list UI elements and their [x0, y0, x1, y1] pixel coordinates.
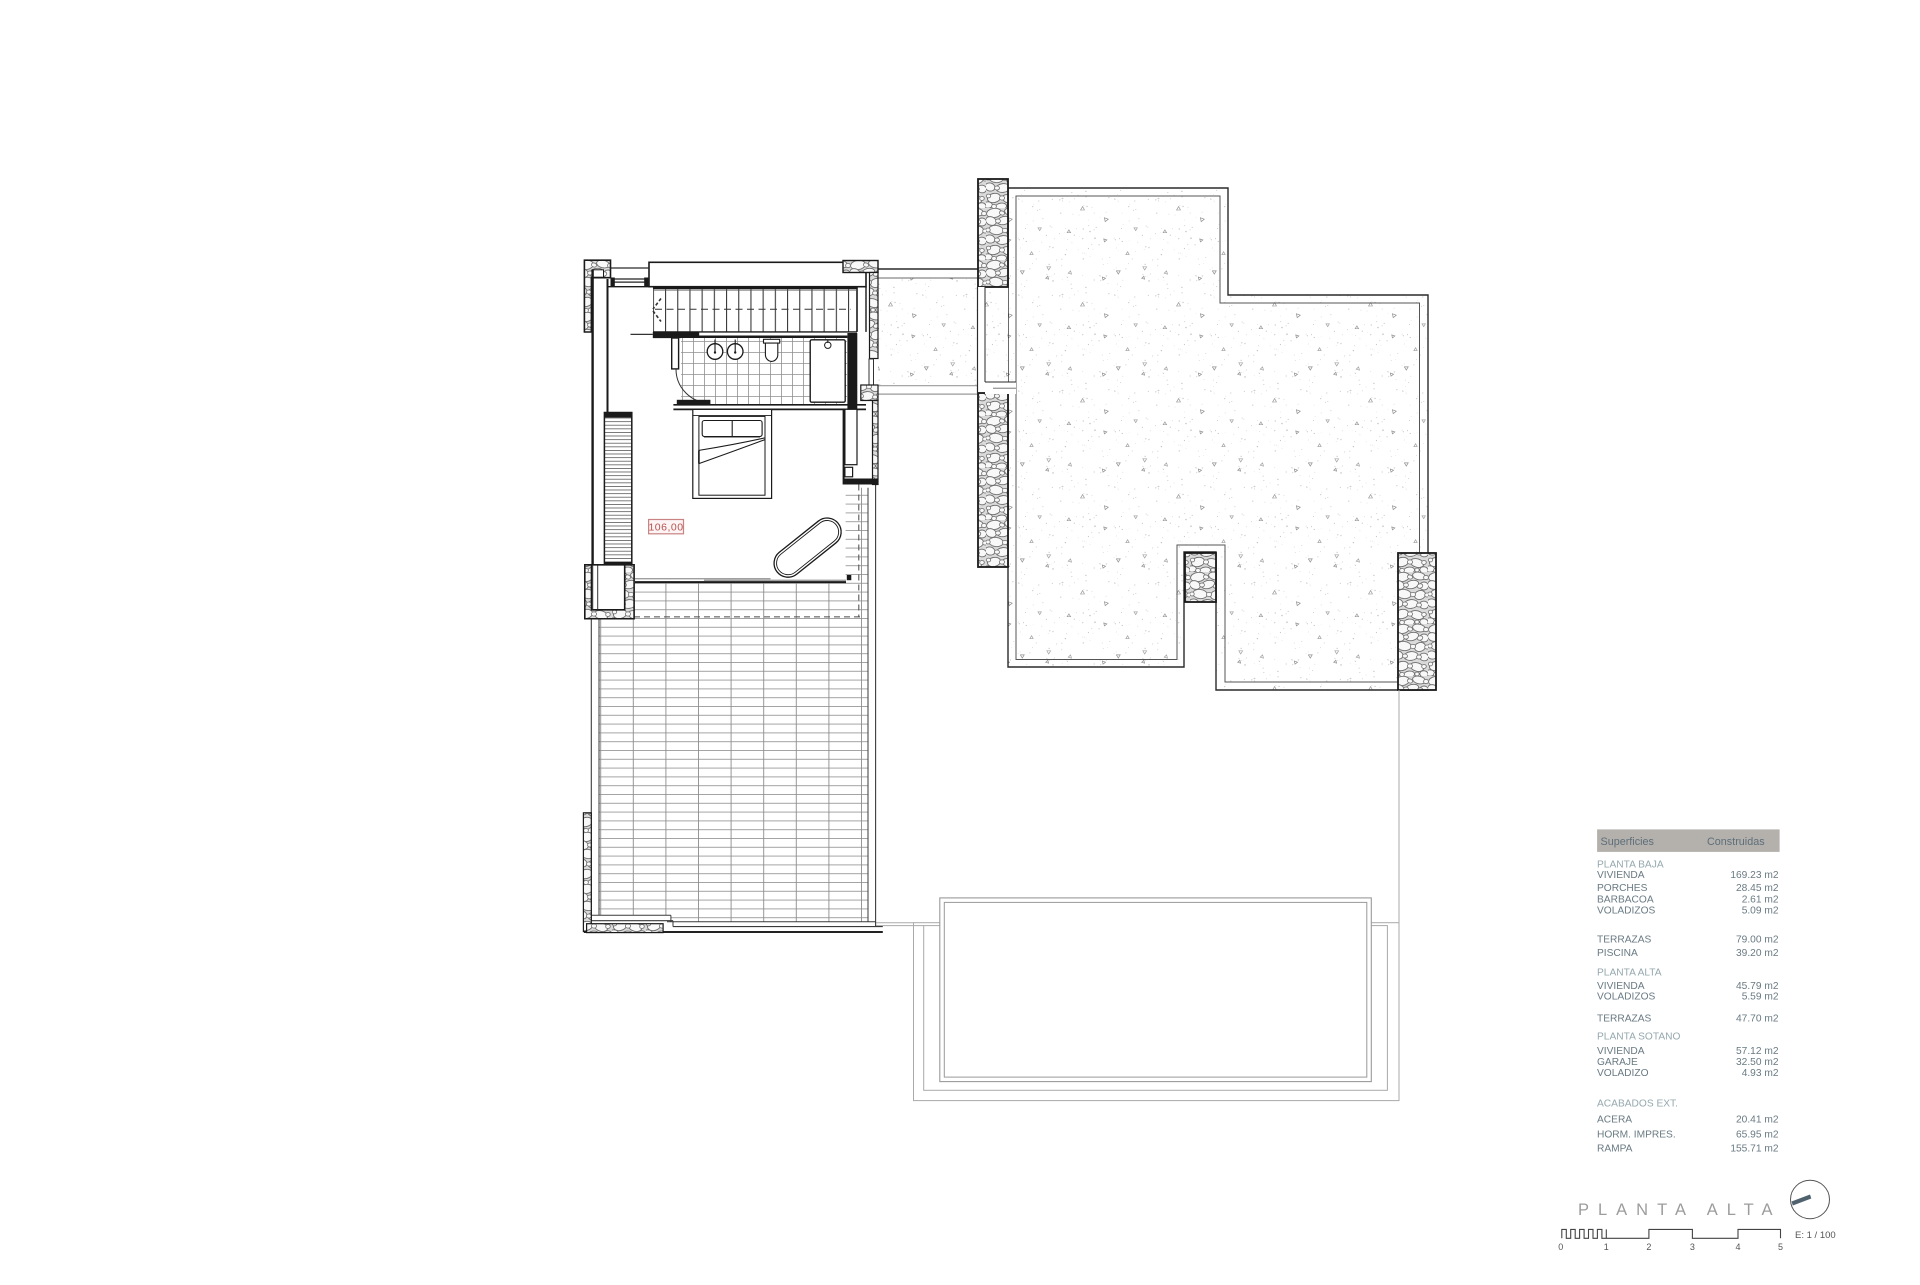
- svg-text:BARBACOA: BARBACOA: [1597, 895, 1654, 906]
- svg-text:PISCINA: PISCINA: [1597, 948, 1638, 959]
- svg-text:106,00: 106,00: [648, 522, 683, 534]
- svg-text:79.00 m2: 79.00 m2: [1736, 935, 1779, 946]
- svg-text:Construidas: Construidas: [1707, 836, 1765, 848]
- svg-text:5.09 m2: 5.09 m2: [1742, 906, 1779, 917]
- svg-text:45.79 m2: 45.79 m2: [1736, 981, 1779, 992]
- svg-text:VIVIENDA: VIVIENDA: [1597, 981, 1645, 992]
- svg-text:4.93 m2: 4.93 m2: [1742, 1068, 1779, 1079]
- svg-text:PLANTA ALTA: PLANTA ALTA: [1597, 968, 1662, 979]
- svg-text:20.41 m2: 20.41 m2: [1736, 1115, 1779, 1126]
- svg-text:3: 3: [1690, 1242, 1695, 1252]
- svg-text:5.59 m2: 5.59 m2: [1742, 992, 1779, 1003]
- svg-text:VIVIENDA: VIVIENDA: [1597, 870, 1645, 881]
- svg-text:ACABADOS EXT.: ACABADOS EXT.: [1597, 1099, 1678, 1110]
- svg-text:2: 2: [1646, 1242, 1651, 1252]
- svg-text:2.61 m2: 2.61 m2: [1742, 895, 1779, 906]
- svg-text:39.20 m2: 39.20 m2: [1736, 948, 1779, 959]
- svg-text:VOLADIZO: VOLADIZO: [1597, 1068, 1649, 1079]
- svg-text:65.95 m2: 65.95 m2: [1736, 1130, 1779, 1141]
- svg-text:155.71 m2: 155.71 m2: [1730, 1144, 1778, 1155]
- svg-text:5: 5: [1778, 1242, 1783, 1252]
- svg-text:VIVIENDA: VIVIENDA: [1597, 1046, 1645, 1057]
- svg-text:VOLADIZOS: VOLADIZOS: [1597, 992, 1656, 1003]
- svg-text:HORM. IMPRES.: HORM. IMPRES.: [1597, 1130, 1676, 1141]
- svg-text:VOLADIZOS: VOLADIZOS: [1597, 906, 1656, 917]
- svg-text:PLANTA BAJA: PLANTA BAJA: [1597, 860, 1664, 871]
- svg-text:ACERA: ACERA: [1597, 1115, 1632, 1126]
- svg-text:0: 0: [1558, 1242, 1563, 1252]
- svg-text:4: 4: [1735, 1242, 1740, 1252]
- svg-text:169.23 m2: 169.23 m2: [1730, 870, 1778, 881]
- svg-text:PLANTA SOTANO: PLANTA SOTANO: [1597, 1032, 1680, 1043]
- svg-text:Superficies: Superficies: [1601, 836, 1655, 848]
- svg-text:PORCHES: PORCHES: [1597, 883, 1648, 894]
- svg-text:E: 1 / 100: E: 1 / 100: [1795, 1230, 1836, 1241]
- svg-text:PLANTA ALTA: PLANTA ALTA: [1578, 1201, 1782, 1219]
- svg-text:57.12 m2: 57.12 m2: [1736, 1046, 1779, 1057]
- svg-text:GARAJE: GARAJE: [1597, 1057, 1638, 1068]
- svg-text:1: 1: [1604, 1242, 1609, 1252]
- svg-text:TERRAZAS: TERRAZAS: [1597, 935, 1652, 946]
- svg-text:RAMPA: RAMPA: [1597, 1144, 1633, 1155]
- svg-text:47.70 m2: 47.70 m2: [1736, 1014, 1779, 1025]
- svg-text:28.45 m2: 28.45 m2: [1736, 883, 1779, 894]
- svg-text:TERRAZAS: TERRAZAS: [1597, 1014, 1652, 1025]
- svg-text:32.50 m2: 32.50 m2: [1736, 1057, 1779, 1068]
